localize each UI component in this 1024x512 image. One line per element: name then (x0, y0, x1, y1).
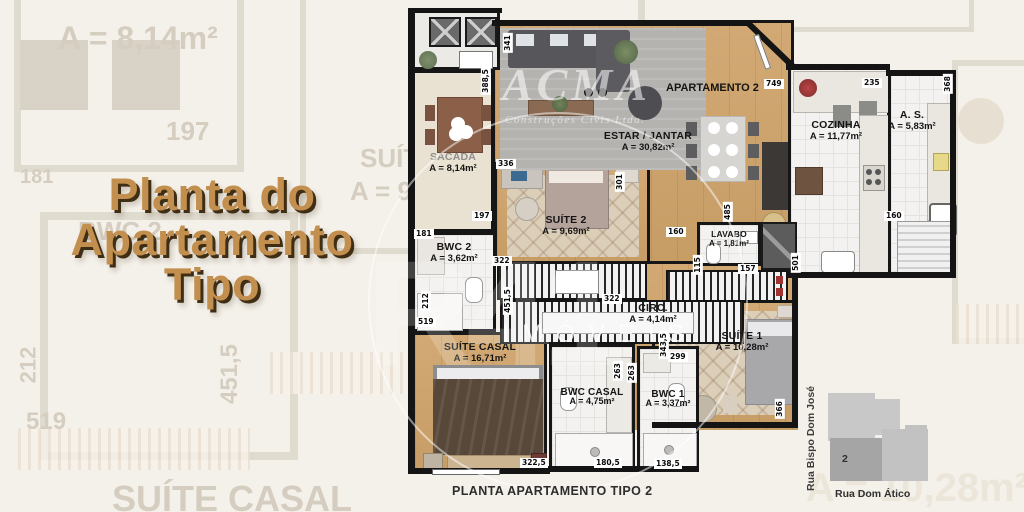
dim-tag: 299 (668, 352, 688, 362)
kitchen-room (788, 66, 890, 278)
wall-right-as (950, 70, 956, 278)
room-label-bwc2: BWC 2 A = 3,62m² (412, 242, 496, 264)
dim-tag: 157 (738, 264, 758, 274)
room-label-suite1: SUÍTE 1 A = 10,28m² (694, 331, 790, 353)
balcony-chair (425, 105, 435, 121)
suite-casal-decor (423, 453, 443, 469)
street-label-bottom: Rua Dom Ático (835, 488, 910, 500)
dim-tag: 181 (414, 229, 434, 239)
dim-tag: 322 (602, 294, 622, 304)
dim-tag: 301 (615, 172, 625, 192)
elevator-lobby (412, 10, 500, 70)
dim-tag: 501 (791, 253, 801, 273)
closet-inner-box (555, 270, 599, 294)
kitchen-fridge (795, 167, 823, 195)
balcony-chair (425, 129, 435, 145)
dim-tag: 160 (666, 227, 686, 237)
dining-plates (708, 122, 720, 134)
bg-label: SUÍTE CASAL (112, 478, 352, 512)
lobby-plant (419, 51, 437, 69)
site-unit-number: 2 (842, 453, 848, 465)
bg-label: 212 (15, 347, 41, 384)
page-title: Planta do Apartamento Tipo (28, 172, 396, 307)
as-drying-rack (897, 221, 953, 277)
closet-wardrobe-top (497, 262, 647, 300)
dim-tag: 749 (764, 79, 784, 89)
apartment-label: APARTAMENTO 2 (666, 82, 759, 94)
sofa-pillows (516, 34, 534, 46)
suite2-room (494, 162, 650, 264)
room-label-bwc-casal: BWC CASAL A = 4,75m² (551, 388, 633, 406)
title-line-2: Apartamento (28, 217, 396, 262)
dim-tag: 235 (862, 78, 882, 88)
service-area-room (888, 72, 956, 278)
suite2-laptop (511, 171, 527, 181)
dim-tag: 388,5 (481, 67, 491, 95)
balcony-chair (481, 129, 491, 145)
dim-tag: 366 (775, 399, 785, 419)
suite1-closet (666, 270, 788, 302)
plan-caption: PLANTA APARTAMENTO TIPO 2 (452, 484, 653, 498)
bg-label: 519 (26, 408, 66, 436)
room-label-lavabo: LAVABO A = 1,81m² (699, 230, 759, 248)
dim-tag: 263 (627, 363, 637, 383)
wall-bottom-kitchen (786, 272, 956, 278)
site-block-unit (830, 438, 882, 481)
bwc1-drain (664, 445, 674, 455)
dim-tag: 336 (496, 159, 516, 169)
room-label-cozinha: COZINHA A = 11,77m² (790, 120, 882, 142)
balcony-chair (481, 105, 491, 121)
bwc2-toilet (465, 277, 483, 303)
bg-label: 451,5 (216, 344, 244, 404)
room-label-suite2: SUÍTE 2 A = 9,69m² (516, 215, 616, 237)
ceiling-lights (584, 88, 593, 97)
closet-shoes (776, 276, 783, 284)
dim-tag: 212 (421, 291, 431, 311)
wall-bottom-suite1 (652, 422, 798, 428)
dim-tag: 341 (503, 33, 513, 53)
bg-label: A = 8,14m² (58, 20, 218, 57)
dim-tag: 519 (416, 317, 436, 327)
dim-tag: 180,5 (594, 458, 622, 468)
suite-casal-window (432, 469, 500, 475)
bwc1-room (637, 346, 699, 472)
wall-left (408, 8, 414, 474)
dim-tag: 485 (723, 202, 733, 222)
dim-tag: 322 (492, 256, 512, 266)
room-label-suite-casal: SUÍTE CASAL A = 16,71m² (430, 342, 530, 364)
dim-tag: 197 (472, 211, 492, 221)
dining-table (700, 116, 746, 182)
bg-plant (958, 98, 1004, 144)
dim-tag: 138,5 (654, 459, 682, 469)
suite2-pillows (549, 171, 603, 183)
dim-tag: 368 (943, 74, 953, 94)
room-label-circ: CIRC. A = 4,14m² (618, 303, 688, 325)
dim-tag: 115 (693, 255, 703, 275)
wall-top-kitchen (786, 64, 890, 70)
coffee-table-plant (552, 96, 568, 112)
kitchen-fruit-bowl (799, 79, 817, 97)
room-label-estar: ESTAR / JANTAR A = 30,82m² (598, 131, 698, 153)
wall-top-living (492, 20, 752, 26)
suite-casal-bench (447, 455, 531, 469)
bg-wardrobe-hatch (270, 352, 418, 394)
kitchen-burners (866, 169, 872, 175)
kitchen-sink (821, 251, 855, 273)
dim-tag: 322,5 (520, 458, 548, 468)
site-block (905, 425, 927, 449)
bg-label: 197 (166, 116, 209, 147)
floor-plant (614, 40, 638, 64)
dining-chair (748, 122, 759, 136)
wall-right-suite1 (792, 262, 798, 428)
bwc-casal-drain (590, 447, 600, 457)
suite-casal-bed (433, 379, 543, 455)
title-line-3: Tipo (28, 262, 396, 307)
floorplan-poster: A = 8,14m² 197 181 BWC 2 SUÍTE A = 9, 21… (0, 0, 1024, 512)
street-label-left: Rua Bispo Dom José (805, 395, 817, 491)
room-label-sacada: SACADA A = 8,14m² (414, 152, 492, 174)
site-map: 2 Rua Bispo Dom José Rua Dom Ático (795, 383, 955, 508)
balcony-plates (451, 117, 465, 131)
title-line-1: Planta do (28, 172, 396, 217)
room-label-as: A. S. A = 5,83m² (880, 110, 944, 132)
dim-tag: 160 (884, 211, 904, 221)
elevator-shaft (429, 17, 461, 47)
wall-top-lobby (408, 8, 502, 13)
bar-counter (762, 142, 788, 210)
pouf (628, 86, 662, 120)
room-label-bwc1: BWC 1 A = 3,37m² (635, 390, 701, 408)
dim-tag: 451,5 (503, 287, 513, 315)
suite-casal-pillows (437, 368, 539, 379)
as-soap (933, 153, 949, 171)
dim-tag: 263 (613, 361, 623, 381)
bg-wardrobe-hatch (956, 304, 1024, 344)
